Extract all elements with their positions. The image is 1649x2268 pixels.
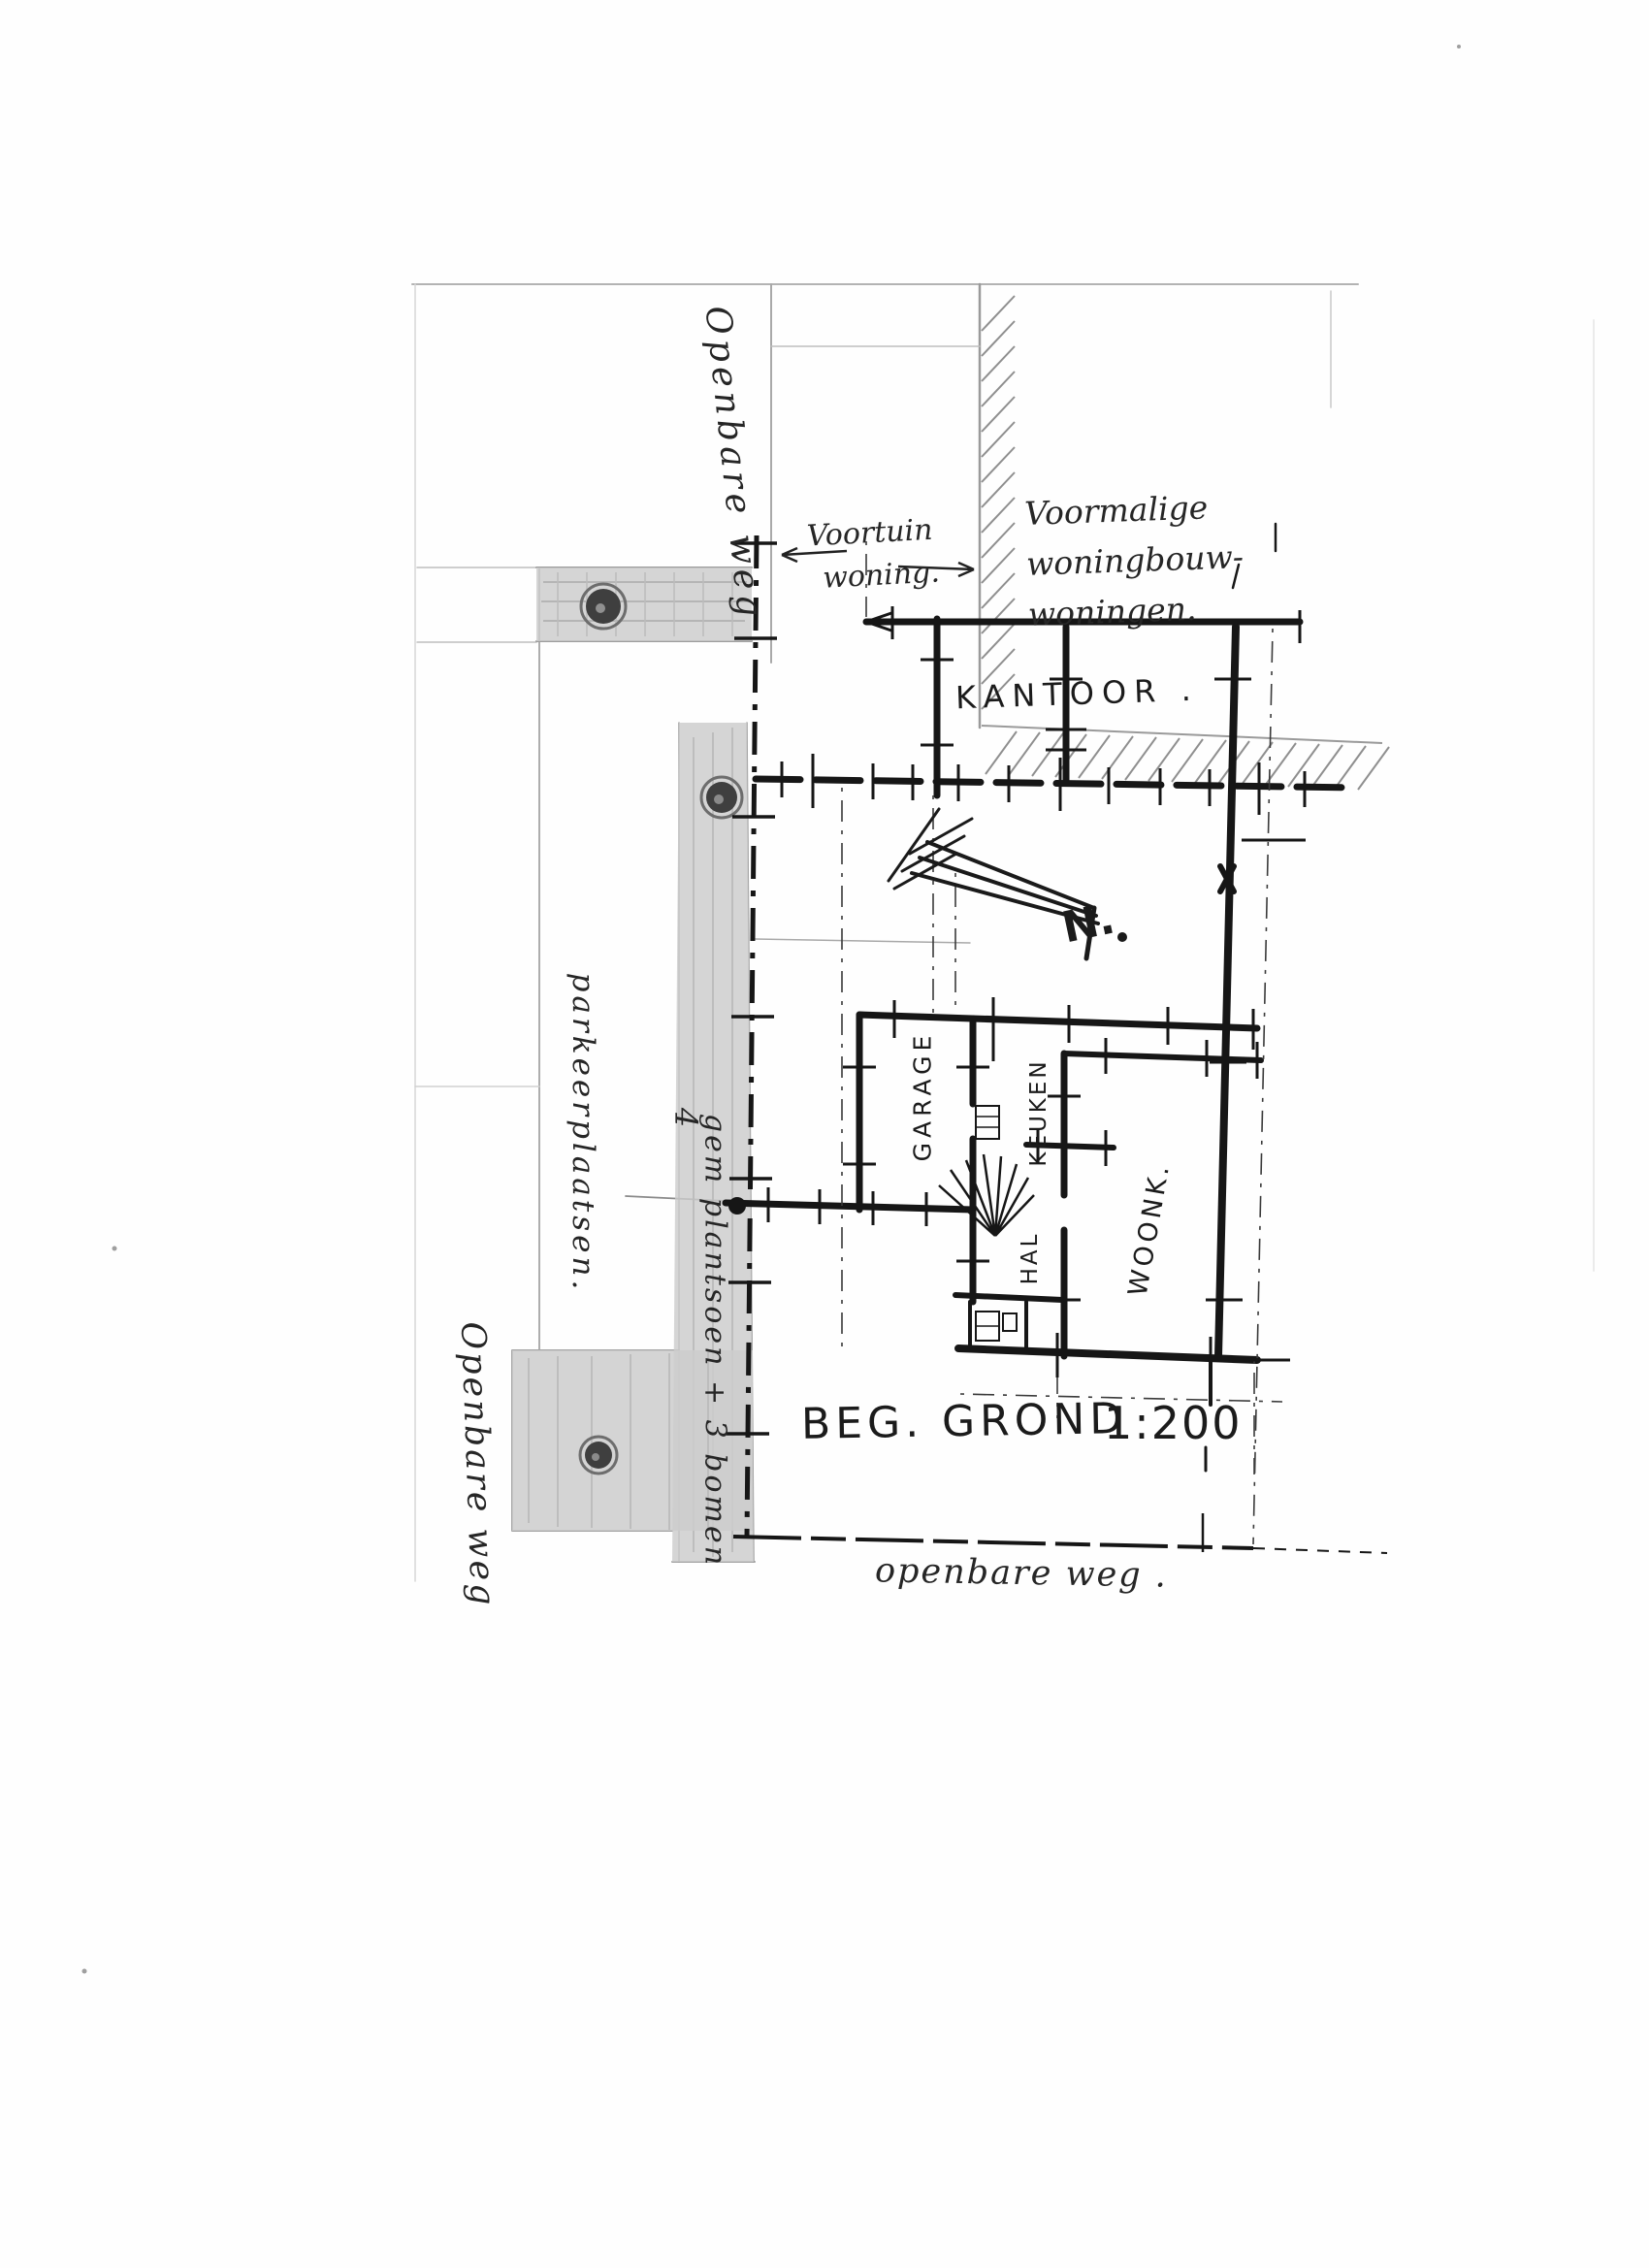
- room-label-garage: GARAGE: [909, 1031, 937, 1162]
- room-label-hal: HAL: [1018, 1232, 1043, 1285]
- label-voortuin-line1: Voortuin: [806, 509, 939, 559]
- road-boundary-bottom: [733, 1513, 1387, 1553]
- tree-icon: [580, 1437, 617, 1474]
- scanned-floorplan-sheet: Openbare weg Voortuin woning. Voormalige…: [0, 0, 1649, 2268]
- door-leaf: [976, 1106, 999, 1139]
- label-voortuin-line2: woning.: [822, 551, 941, 599]
- label-voormalige-woningbouw: Voormalige woningbouw- woningen.: [1023, 481, 1245, 640]
- drawing-scale: 1:200: [1104, 1397, 1243, 1449]
- interior-details: [939, 1106, 1034, 1341]
- wc-sink: [1003, 1313, 1017, 1331]
- label-voormalige-line2: woningbouw-: [1025, 532, 1245, 590]
- building-walls: [726, 524, 1355, 1471]
- north-letter: N.: [1058, 893, 1119, 953]
- label-openbare-weg-bottom: openbare weg .: [875, 1551, 1169, 1595]
- label-voormalige-line3: woningen.: [1027, 582, 1246, 640]
- label-voormalige-line1: Voormalige: [1023, 481, 1243, 539]
- label-gem-plantsoen: gem plantsoen + 3 bomen: [698, 1114, 732, 1568]
- room-label-keuken: KEUKEN: [1026, 1058, 1051, 1166]
- tree-icon: [701, 777, 742, 818]
- spiral-stair: [939, 1154, 1034, 1236]
- label-parkeerplaatsen: parkeerplaatsen.: [566, 973, 600, 1294]
- label-voortuin-woning: Voortuin woning.: [806, 509, 941, 601]
- tree-icon: [581, 584, 626, 629]
- plan-linework: [0, 0, 1649, 2268]
- drawing-title: BEG. GROND: [801, 1394, 1128, 1449]
